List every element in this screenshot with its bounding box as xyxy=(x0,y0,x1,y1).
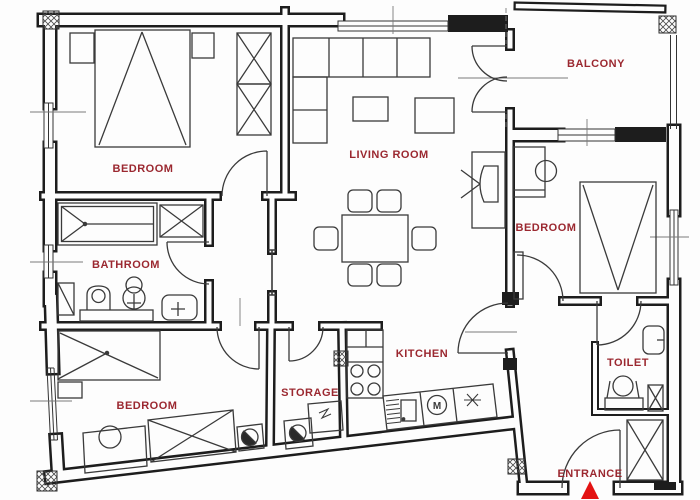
column-icon xyxy=(43,11,59,29)
column-icon xyxy=(508,459,525,474)
column-icon xyxy=(659,16,676,33)
kitchen-label: KITCHEN xyxy=(396,348,448,360)
balcony-label: BALCONY xyxy=(567,58,625,70)
paper-background xyxy=(0,0,700,500)
bathroom-label: BATHROOM xyxy=(92,259,160,271)
window-icon xyxy=(44,103,53,148)
window-icon xyxy=(670,210,678,285)
floor-plan-page: BEDROOM LIVING ROOM BALCONY BEDROOM BATH… xyxy=(0,0,700,500)
floor-plan-drawing: BEDROOM LIVING ROOM BALCONY BEDROOM BATH… xyxy=(0,0,700,500)
column-icon xyxy=(37,471,57,491)
entrance-label: ENTRANCE xyxy=(557,468,622,480)
wall-block xyxy=(448,15,508,32)
bedroom-top-left-label: BEDROOM xyxy=(113,163,174,175)
window-icon xyxy=(558,129,615,141)
storage-label: STORAGE xyxy=(281,387,339,399)
wall-block xyxy=(503,358,517,370)
window-icon xyxy=(44,245,53,278)
toilet-label: TOILET xyxy=(607,357,649,369)
living-room-label: LIVING ROOM xyxy=(349,149,428,161)
wall-block xyxy=(654,482,676,490)
wall-block xyxy=(615,127,666,142)
bedroom-bottom-left-label: BEDROOM xyxy=(117,400,178,412)
bedroom-right-label: BEDROOM xyxy=(516,222,577,234)
column-icon xyxy=(334,351,348,366)
washing-machine-label: M xyxy=(433,401,441,412)
